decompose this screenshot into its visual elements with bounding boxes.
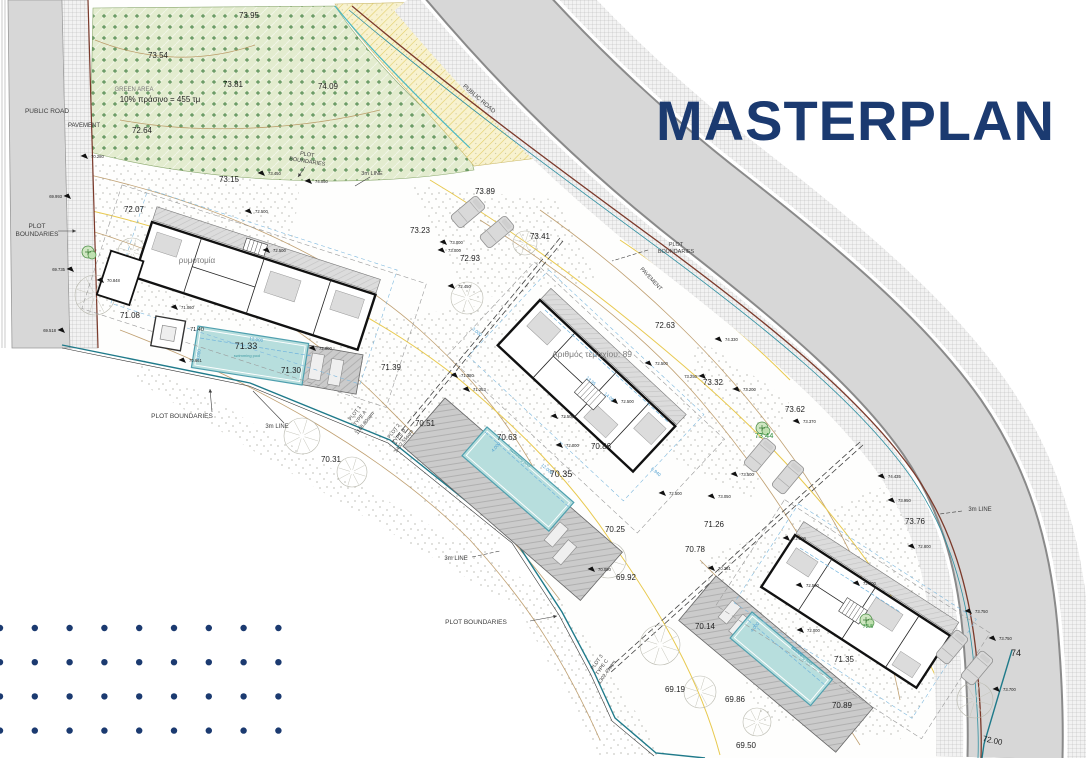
plan-label: 10% πράσινο = 455 τμ [120,95,201,104]
plan-label: 71.08 [120,311,141,320]
decor-dot [0,625,3,631]
decor-dot [101,727,107,733]
plan-label: PAVEMENT [68,123,100,129]
plan-label: 70.14 [695,622,716,631]
decor-dot [275,693,281,699]
plan-label: 69.92 [616,573,637,582]
plan-label: 70.86 [591,442,612,451]
svg-text:70.281: 70.281 [718,566,731,571]
svg-text:72.500: 72.500 [863,581,876,586]
plan-label: 3m LINE [444,556,467,562]
plan-label: 73.32 [703,378,724,387]
decor-dot [136,625,142,631]
plan-label: 71.39 [381,363,402,372]
plan-label: 70.25 [605,525,626,534]
plan-label: 69.50 [736,741,757,750]
svg-text:73.450: 73.450 [268,171,281,176]
plan-label: PLOT [669,242,684,248]
svg-text:71.253: 71.253 [473,387,486,392]
svg-text:71.060: 71.060 [181,305,194,310]
svg-text:69.518: 69.518 [43,328,56,333]
page-title: MASTERPLAN [656,88,1055,153]
plan-label: swimming pool [234,353,261,358]
decor-dot [66,693,72,699]
svg-text:74.050: 74.050 [315,179,328,184]
plan-label: 69.86 [725,695,746,704]
plan-label: 70.51 [415,419,436,428]
decor-dot [206,659,212,665]
tree [284,418,320,454]
decor-dot [240,625,246,631]
decor-dot [136,693,142,699]
plan-label: 3m LINE [968,507,991,513]
plan-label: 70.63 [497,433,518,442]
masterplan-slide: 70.28073.45074.05072.50072.50071.06069.9… [0,0,1086,758]
plan-label: 74.09 [318,82,339,91]
svg-text:72.450: 72.450 [458,284,471,289]
plan-label: PLOT BOUNDARIES [151,413,213,420]
svg-text:73.250: 73.250 [684,374,697,379]
svg-text:70.280: 70.280 [91,154,104,159]
plan-label: 72.93 [460,254,481,263]
plan-label: 73.81 [223,80,244,89]
svg-text:70.090: 70.090 [598,567,611,572]
decor-dot [66,727,72,733]
decor-dot [206,727,212,733]
svg-text:73.700: 73.700 [1003,687,1016,692]
left-public-road [2,0,98,348]
decor-dot [32,659,38,665]
decor-dot [66,659,72,665]
svg-text:73.000: 73.000 [448,248,461,253]
svg-text:69.735: 69.735 [52,267,65,272]
decor-dot [171,727,177,733]
svg-text:72.500: 72.500 [655,361,668,366]
decor-dot [32,693,38,699]
svg-text:72.500: 72.500 [273,248,286,253]
plan-label: 73.95 [239,11,260,20]
plan-label: BOUNDARIES [658,249,695,255]
decor-dot [136,727,142,733]
decor-dot [206,625,212,631]
plan-label: 73.54 [148,51,169,60]
plan-label: 72.5 [863,624,874,630]
plan-label: 71.26 [704,520,725,529]
plan-label: 69.19 [665,685,686,694]
plan-label: 3m LINE [361,171,383,177]
svg-text:72.500: 72.500 [806,583,819,588]
svg-text:72.500: 72.500 [621,399,634,404]
svg-text:74.435: 74.435 [888,474,901,479]
decor-dot [171,659,177,665]
decor-dot [171,625,177,631]
svg-text:73.050: 73.050 [718,494,731,499]
plan-label: 71.35 [834,655,855,664]
svg-text:73.750: 73.750 [975,609,988,614]
svg-text:72.800: 72.800 [918,544,931,549]
plan-label: 71.33 [235,341,258,351]
plan-label: 73.76 [905,517,926,526]
svg-text:70.848: 70.848 [107,278,120,283]
decor-dot [275,659,281,665]
plan-label: 72.64 [132,126,153,135]
decor-dot [101,693,107,699]
decor-dot [136,659,142,665]
plan-label: 70.31 [321,455,342,464]
svg-text:73.200: 73.200 [743,387,756,392]
plan-label: 70.89 [832,701,853,710]
plan-label: PUBLIC ROAD [25,108,69,115]
decor-dot [0,693,3,699]
decor-dot [171,693,177,699]
plan-label: 74 [1011,648,1021,658]
svg-text:73.750: 73.750 [999,636,1012,641]
plan-label: 71.30 [281,366,302,375]
svg-text:71.380: 71.380 [461,373,474,378]
decor-dot-grid [0,625,282,734]
decor-dot [0,727,3,733]
decor-dot [101,625,107,631]
svg-text:73.000: 73.000 [450,240,463,245]
plan-label: PLOT [29,223,46,230]
decor-dot [275,727,281,733]
decor-dot [101,659,107,665]
svg-text:72.500: 72.500 [255,209,268,214]
plan-label: 73.41 [530,232,551,241]
svg-text:72.500: 72.500 [793,536,806,541]
plan-label: 73.44 [755,431,774,440]
svg-text:73.370: 73.370 [803,419,816,424]
plan-label: 73.89 [475,187,496,196]
plan-label: 73.15 [219,175,240,184]
plan-label: 71.40 [190,327,204,333]
plan-label: 72.63 [655,321,676,330]
svg-text:69.993: 69.993 [49,194,62,199]
decor-dot [66,625,72,631]
svg-text:73.500: 73.500 [741,472,754,477]
plan-label: 73.23 [410,226,431,235]
svg-text:72.000: 72.000 [807,628,820,633]
decor-dot [32,625,38,631]
plan-label: Αριθμός τεμαχίου: 89 [552,349,632,359]
decor-dot [240,727,246,733]
decor-dot [0,659,3,665]
plan-label: GREEN AREA [114,87,153,93]
decor-dot [240,659,246,665]
decor-dot [206,693,212,699]
decor-dot [275,625,281,631]
decor-dot [240,693,246,699]
plan-label: 70.78 [685,545,706,554]
plan-label: ρυμοτομία [179,256,216,265]
decor-dot [32,727,38,733]
svg-text:73.950: 73.950 [898,498,911,503]
svg-text:72.500: 72.500 [561,414,574,419]
plan-label: 3m LINE [265,424,288,430]
plan-label: 72.07 [124,205,145,214]
plan-label: 73.62 [785,405,806,414]
pavilion-1 [151,316,186,351]
svg-text:72.000: 72.000 [319,346,332,351]
plan-label: PLOT BOUNDARIES [445,619,507,626]
svg-text:74.330: 74.330 [725,337,738,342]
svg-text:72.000: 72.000 [566,443,579,448]
svg-text:72.500: 72.500 [669,491,682,496]
plan-label: BOUNDARIES [16,231,60,238]
